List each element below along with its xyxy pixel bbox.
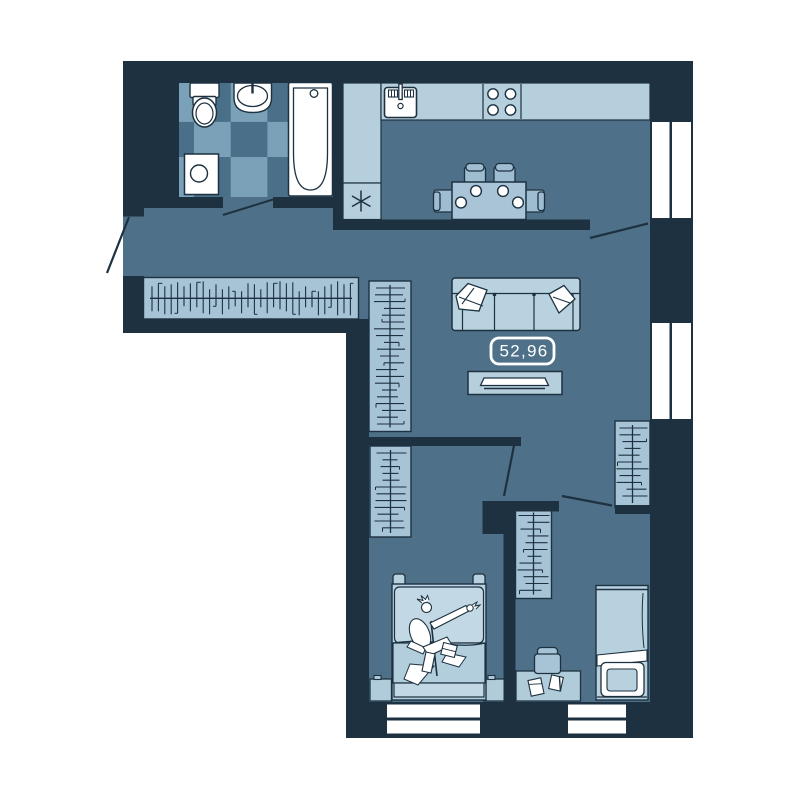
svg-text:52,96: 52,96 — [499, 342, 548, 361]
